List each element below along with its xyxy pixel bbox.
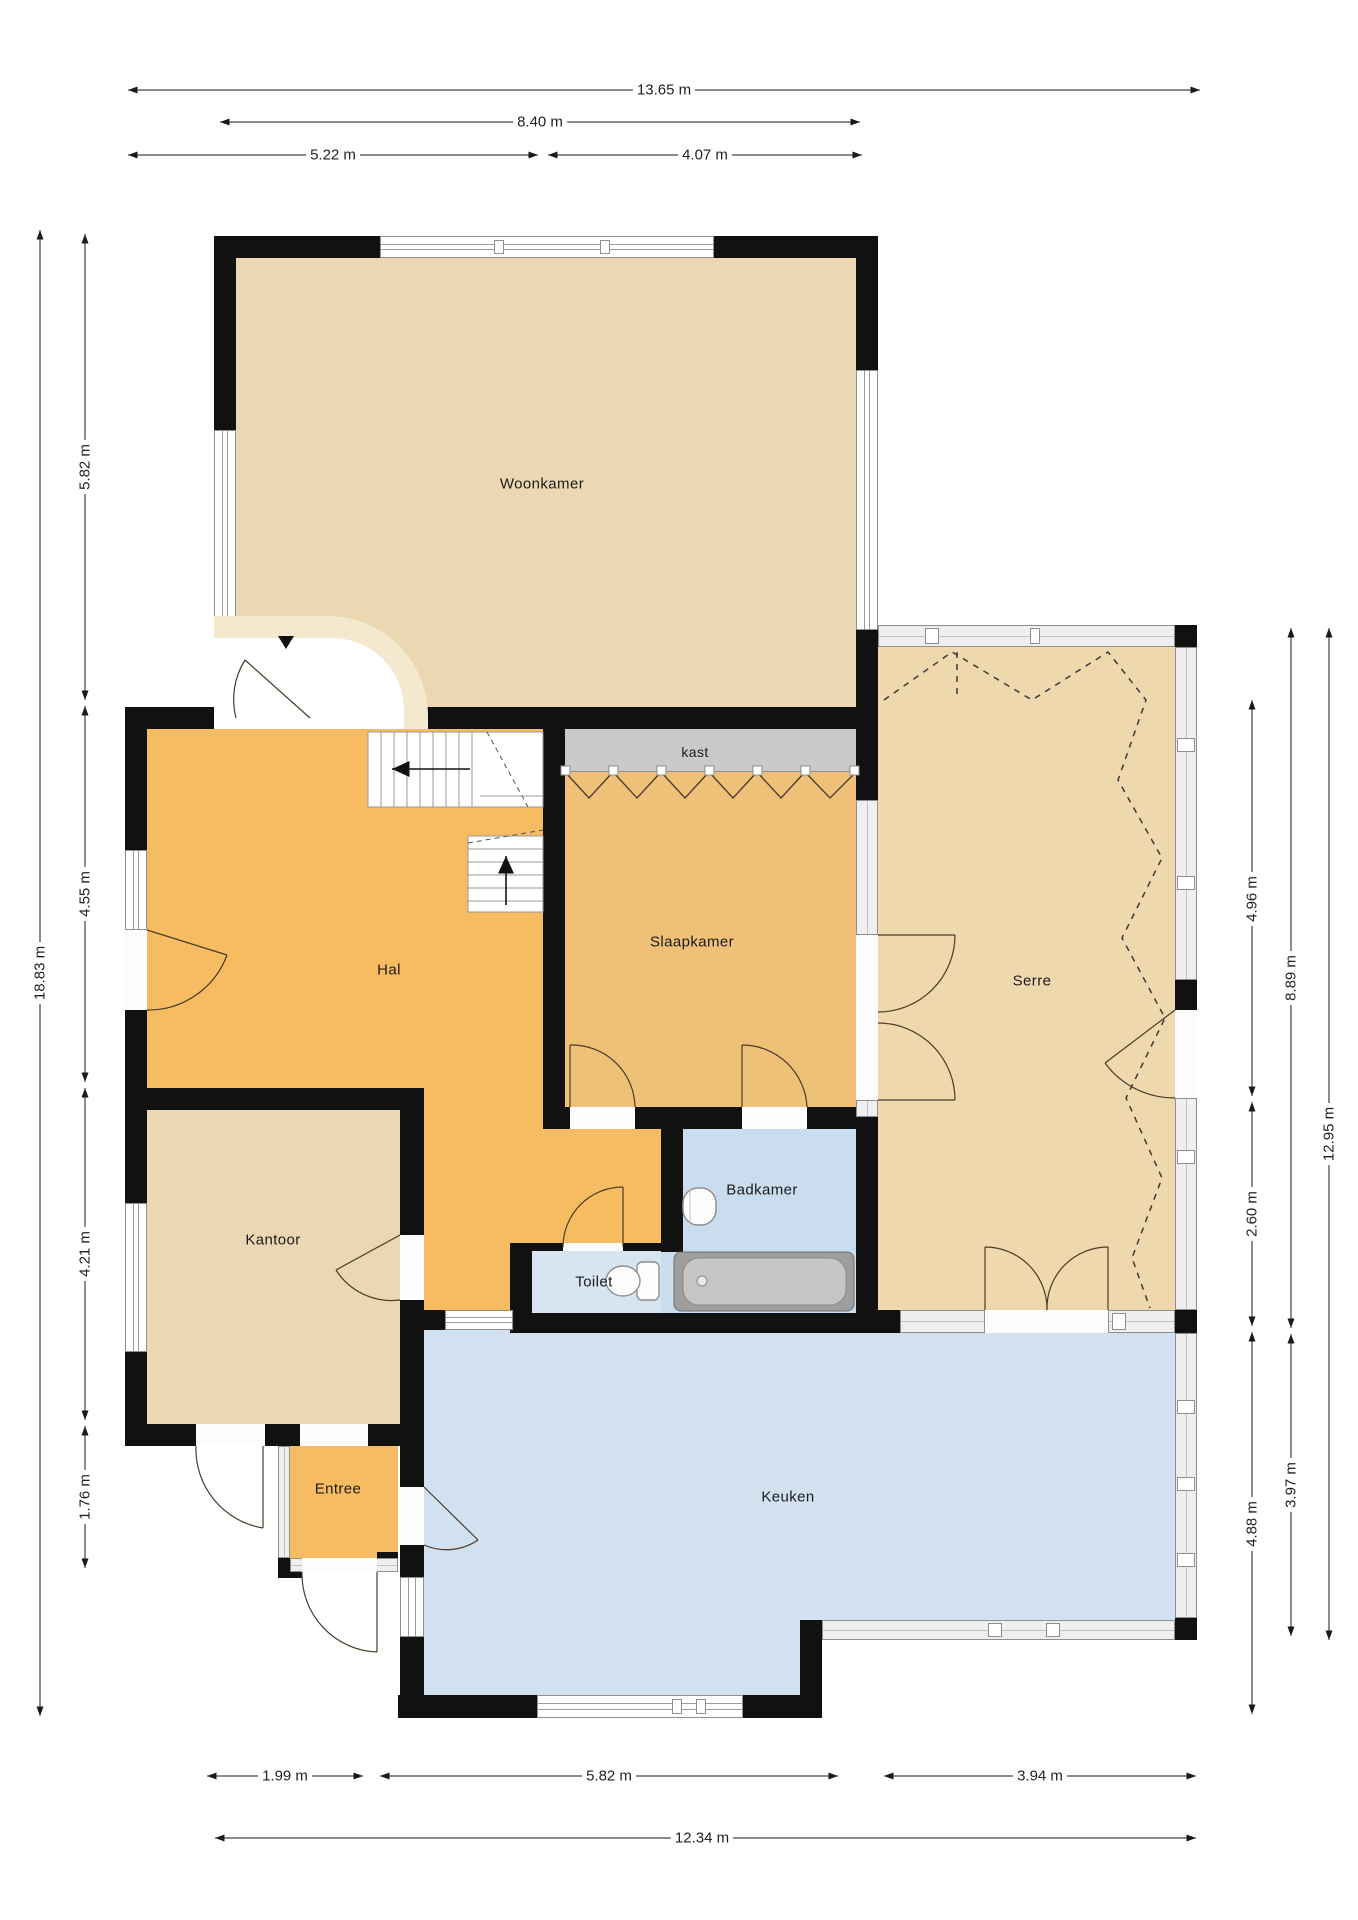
- dim-label: 1.76 m: [77, 1470, 94, 1524]
- dim-label: 12.34 m: [671, 1830, 733, 1847]
- washbasin-icon: [683, 1188, 716, 1225]
- dim-label: 4.96 m: [1244, 872, 1261, 926]
- dimension-lines: [40, 90, 1329, 1838]
- dim-label: 5.82 m: [582, 1768, 636, 1785]
- dim-label: 12.95 m: [1321, 1103, 1338, 1165]
- dim-label: 5.22 m: [306, 147, 360, 164]
- dim-label: 4.21 m: [77, 1227, 94, 1281]
- room-label-badkamer: Badkamer: [726, 1182, 798, 1199]
- room-label-kantoor: Kantoor: [245, 1232, 300, 1249]
- closet-accordion-doors: [565, 772, 856, 798]
- room-label-kast: kast: [681, 744, 708, 760]
- dim-label: 4.88 m: [1244, 1497, 1261, 1551]
- room-label-toilet: Toilet: [575, 1274, 612, 1291]
- dim-label: 3.97 m: [1283, 1458, 1300, 1512]
- room-label-slaapkamer: Slaapkamer: [650, 934, 734, 951]
- room-label-entree: Entree: [315, 1481, 362, 1498]
- step-arrow: [278, 636, 294, 649]
- floorplan: Woonkamer Hal Kantoor Entree Toilet Badk…: [0, 0, 1358, 1920]
- dim-label: 13.65 m: [633, 82, 695, 99]
- bathtub-icon: [674, 1252, 854, 1311]
- room-label-keuken: Keuken: [761, 1489, 814, 1506]
- room-label-hal: Hal: [377, 962, 401, 979]
- toilet-icon: [606, 1262, 659, 1300]
- dim-label: 18.83 m: [32, 942, 49, 1004]
- dim-label: 4.55 m: [77, 867, 94, 921]
- closet-hinges: [561, 766, 859, 775]
- room-label-woonkamer: Woonkamer: [500, 476, 584, 493]
- dim-label: 8.89 m: [1283, 951, 1300, 1005]
- dim-label: 3.94 m: [1013, 1768, 1067, 1785]
- dim-label: 4.07 m: [678, 147, 732, 164]
- door-swings: [147, 660, 1175, 1652]
- room-label-serre: Serre: [1013, 973, 1052, 990]
- dim-label: 5.82 m: [77, 440, 94, 494]
- dim-label: 8.40 m: [513, 114, 567, 131]
- dim-label: 1.99 m: [258, 1768, 312, 1785]
- dim-label: 2.60 m: [1244, 1187, 1261, 1241]
- plan-vectors: [0, 0, 1358, 1920]
